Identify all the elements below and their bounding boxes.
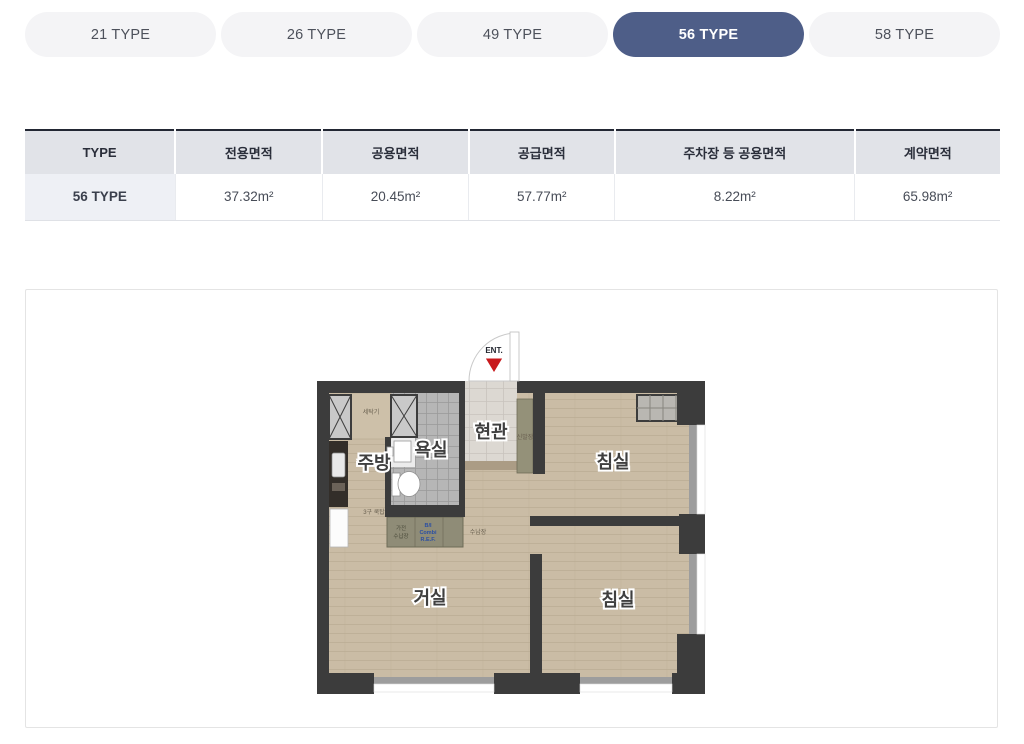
tab-58-type[interactable]: 58 TYPE xyxy=(809,12,1000,57)
col-header-exclusive-area: 전용면적 xyxy=(175,130,322,174)
toilet xyxy=(392,472,420,497)
tab-49-type[interactable]: 49 TYPE xyxy=(417,12,608,57)
duct-shaft-left xyxy=(329,395,351,439)
tab-56-type[interactable]: 56 TYPE xyxy=(613,12,804,57)
area-spec-table-wrap: TYPE 전용면적 공용면적 공급면적 주차장 등 공용면적 계약면적 56 T… xyxy=(25,129,1000,221)
cell-common-area: 20.45m² xyxy=(322,174,468,220)
appliance-cabinet-label-line1: 가전 xyxy=(395,524,405,532)
bedroom1-label: 침실 xyxy=(596,452,629,472)
tab-21-type[interactable]: 21 TYPE xyxy=(25,12,216,57)
floor-areas xyxy=(329,381,693,685)
floor-plan-panel: ENT. 주방 욕실 현관 침실 거실 침실 세탁기 3구 쿡탑 가전 수납장 … xyxy=(25,289,998,728)
cell-type: 56 TYPE xyxy=(25,174,175,220)
table-row: 56 TYPE 37.32m² 20.45m² 57.77m² 8.22m² 6… xyxy=(25,174,1000,220)
bedroom2-label: 침실 xyxy=(601,590,634,610)
col-header-supply-area: 공급면적 xyxy=(469,130,615,174)
shoe-cabinet-label: 신발장 xyxy=(516,433,533,441)
table-header-row: TYPE 전용면적 공용면적 공급면적 주차장 등 공용면적 계약면적 xyxy=(25,130,1000,174)
builtin-fridge-label-line1: B/I xyxy=(424,523,432,529)
cooktop-label: 3구 쿡탑 xyxy=(363,508,385,516)
appliance-cabinet-label-line2: 수납장 xyxy=(393,532,408,540)
washer-label: 세탁기 xyxy=(362,408,379,416)
col-header-common-area: 공용면적 xyxy=(322,130,468,174)
entrance-marker-label: ENT. xyxy=(485,346,502,355)
cell-exclusive-area: 37.32m² xyxy=(175,174,322,220)
living-room-label: 거실 xyxy=(413,588,446,608)
storage-label: 수납장 xyxy=(469,528,486,536)
duct-shaft-bath xyxy=(391,395,417,437)
floor-plan: ENT. 주방 욕실 현관 침실 거실 침실 세탁기 3구 쿡탑 가전 수납장 … xyxy=(317,328,707,694)
kitchen-counter xyxy=(329,441,348,547)
tab-26-type[interactable]: 26 TYPE xyxy=(221,12,412,57)
area-spec-table: TYPE 전용면적 공용면적 공급면적 주차장 등 공용면적 계약면적 56 T… xyxy=(25,129,1000,221)
cell-parking-common-area: 8.22m² xyxy=(615,174,855,220)
entrance-hall-label: 현관 xyxy=(474,422,508,442)
col-header-contract-area: 계약면적 xyxy=(855,130,1000,174)
col-header-parking-common-area: 주차장 등 공용면적 xyxy=(615,130,855,174)
builtin-fridge-label-line2: Combi xyxy=(419,530,437,536)
cell-contract-area: 65.98m² xyxy=(855,174,1000,220)
kitchen-label: 주방 xyxy=(357,453,391,473)
col-header-type: TYPE xyxy=(25,130,175,174)
type-tab-bar: 21 TYPE 26 TYPE 49 TYPE 56 TYPE 58 TYPE xyxy=(25,12,1000,57)
bathroom-label: 욕실 xyxy=(414,440,447,460)
cell-supply-area: 57.77m² xyxy=(469,174,615,220)
builtin-fridge-label-line3: R.E.F. xyxy=(420,537,435,543)
